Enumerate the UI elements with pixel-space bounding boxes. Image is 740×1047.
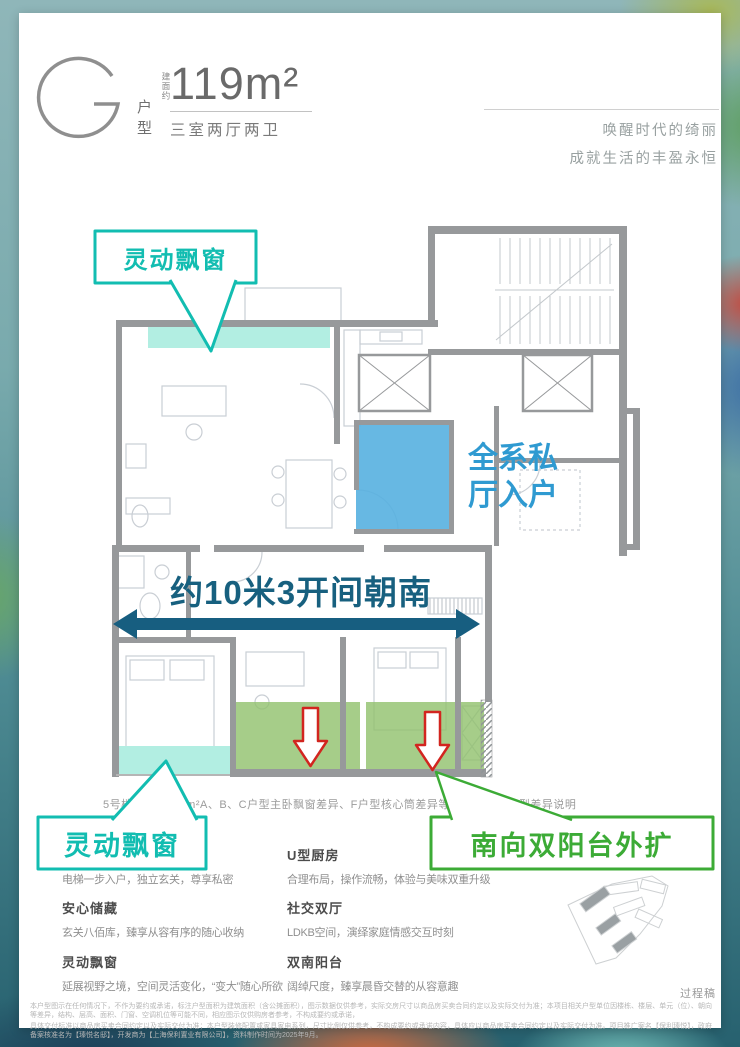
callout-pointer-balcony (436, 772, 572, 820)
callout-pointer-bay-top (170, 280, 236, 351)
callout-pointer-bay-bottom (112, 761, 197, 820)
floor-plan-poster: { "header": { "type_letter": "G", "type_… (0, 0, 740, 1047)
callout-label-bay-top: 灵动飘窗 (95, 231, 256, 283)
callout-label-bay-bottom: 灵动飘窗 (38, 817, 206, 869)
callout-label-balcony: 南向双阳台外扩 (431, 817, 713, 869)
callout-bubbles (0, 0, 740, 1047)
